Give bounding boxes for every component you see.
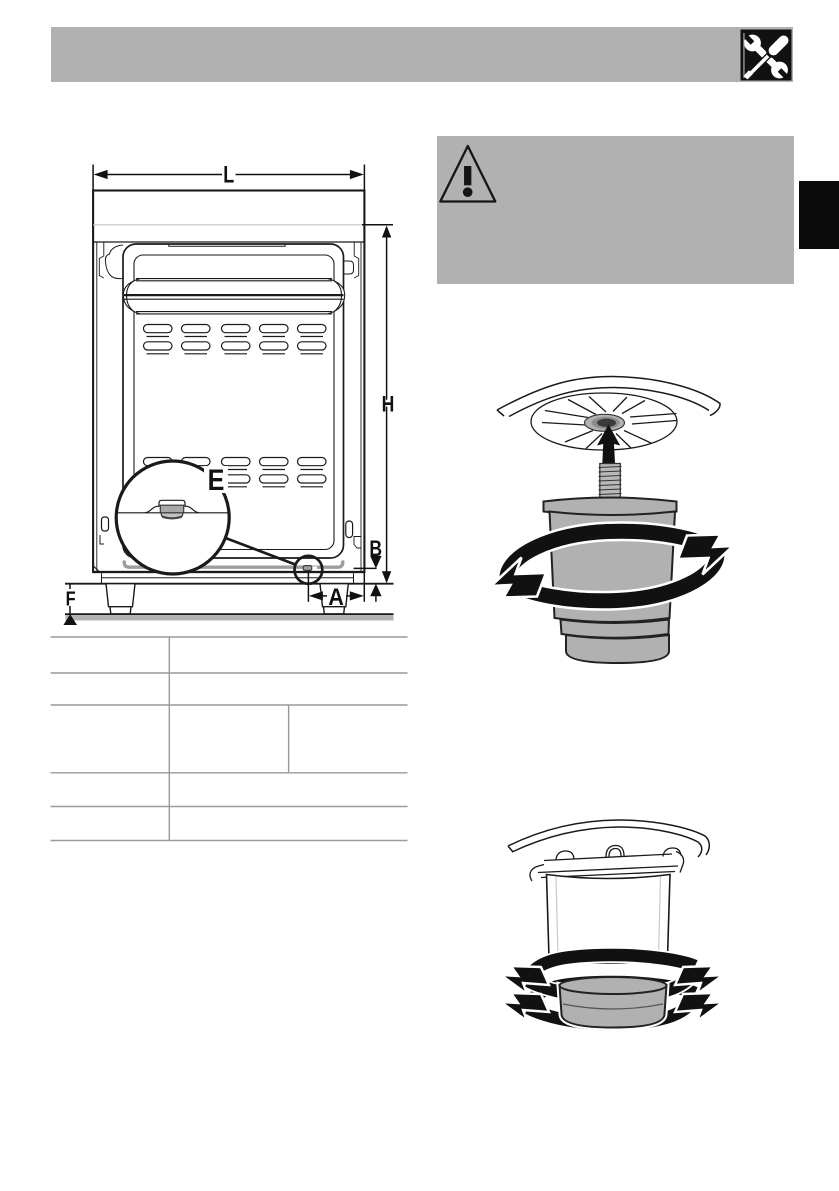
svg-text:H: H	[382, 393, 395, 418]
svg-text:E: E	[208, 463, 225, 497]
svg-text:A: A	[328, 583, 344, 610]
svg-text:B: B	[369, 537, 382, 562]
svg-text:L: L	[223, 162, 234, 188]
svg-text:F: F	[66, 587, 76, 610]
